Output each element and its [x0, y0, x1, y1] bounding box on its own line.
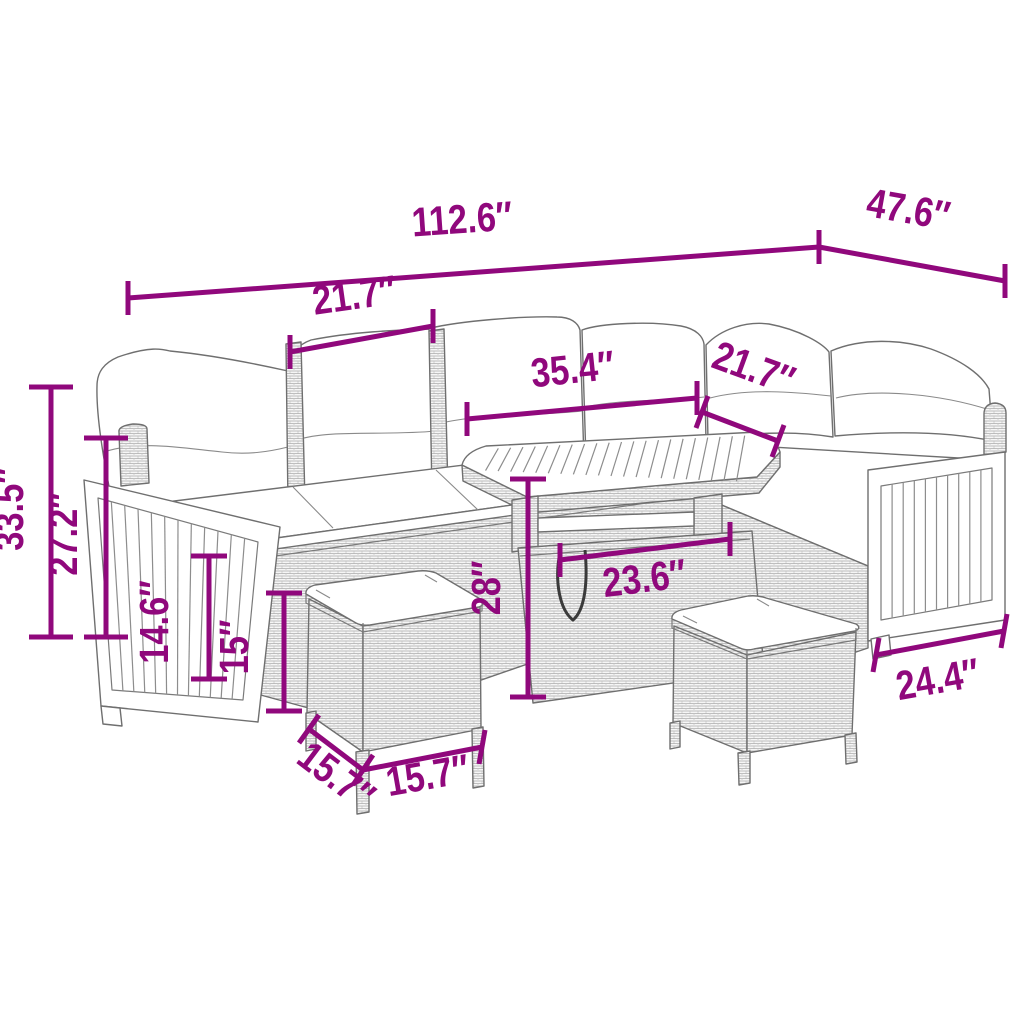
dim-label-stool-height: 15″	[212, 620, 257, 675]
dim-label-total-depth: 47.6″	[863, 181, 953, 240]
product-dimension-diagram: 112.6″ 47.6″ 21.7″ 35.4″ 21.7″	[0, 0, 1024, 1024]
dim-label-table-length: 35.4″	[529, 343, 617, 397]
dim-label-base-height: 14.6″	[132, 580, 177, 664]
diagram-canvas: 112.6″ 47.6″ 21.7″ 35.4″ 21.7″	[0, 0, 1024, 1024]
dim-label-total-width: 112.6″	[410, 194, 514, 246]
dim-label-seat-width: 21.7″	[310, 268, 399, 325]
dim-label-total-height: 33.5″	[0, 467, 33, 551]
dim-total-width: 112.6″	[128, 194, 819, 315]
right-arm-panel	[868, 452, 1005, 659]
dim-label-table-height: 28″	[464, 561, 509, 616]
dim-total-depth: 47.6″	[819, 181, 1005, 298]
dim-label-stool-width: 15.7″	[383, 747, 473, 806]
dim-label-back-height: 27.2″	[41, 492, 86, 576]
stool-right	[670, 596, 859, 785]
dim-label-arm-depth: 24.4″	[893, 651, 983, 710]
